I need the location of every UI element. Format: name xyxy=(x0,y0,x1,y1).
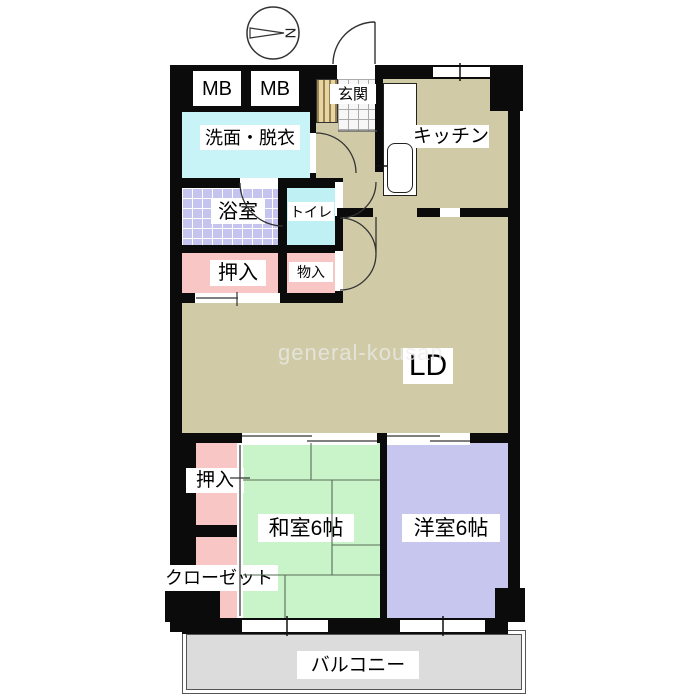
japanese-room-window xyxy=(242,618,328,634)
wall-kitchen-ld-c xyxy=(460,208,508,217)
wall-monoire-bottom xyxy=(280,293,343,303)
wall-room-divider xyxy=(380,433,387,618)
kitchen-window xyxy=(433,65,490,79)
balcony-label: バルコニー xyxy=(297,651,419,679)
western-room-window xyxy=(400,618,485,634)
kitchen-pass-opening xyxy=(440,208,460,217)
monoire-label: 物入 xyxy=(289,262,333,282)
compass-north-letter: N xyxy=(282,28,299,39)
japanese-room-label: 和室6帖 xyxy=(258,514,354,542)
japanese-room-sliding-door xyxy=(242,433,377,445)
kitchen-sink xyxy=(387,143,413,193)
wall-bottom-a xyxy=(182,618,242,634)
wall-kitchen-ld-a xyxy=(337,208,373,217)
entrance-door-arc xyxy=(333,22,375,64)
wall-top-b xyxy=(377,65,433,79)
wall-washroom-bottom xyxy=(170,178,240,188)
floor-plan: MB MB 玄関 キッチン 洗面・脱衣 浴室 トイレ 押入 物入 LD 押入 ク… xyxy=(0,0,700,700)
pillar-top-right xyxy=(490,65,523,111)
oshiire-sliding-opening xyxy=(195,293,280,303)
wall-bath-toilet-divider xyxy=(278,178,287,295)
bathroom-label: 浴室 xyxy=(211,199,265,224)
genkan-label: 玄関 xyxy=(330,84,376,104)
wall-ld-bedroom-c xyxy=(470,433,508,443)
wall-ld-bedroom-a xyxy=(182,433,242,443)
toilet-label: トイレ xyxy=(288,202,334,221)
oshiire-lower-label: 押入 xyxy=(186,468,244,493)
monoire-door-opening xyxy=(335,251,343,291)
wall-oshiire-closet-divider xyxy=(182,525,237,537)
pillar-bottom-right xyxy=(495,588,525,622)
wall-left xyxy=(170,79,182,632)
meter-box-2: MB xyxy=(251,71,299,106)
watermark-text: general-kousan xyxy=(278,340,444,366)
compass-icon: N xyxy=(247,7,299,59)
wall-bath-oshiire-divider xyxy=(170,245,343,253)
wall-bottom-b xyxy=(328,618,400,634)
wall-toilet-top xyxy=(283,178,343,188)
wall-bottom-c xyxy=(485,618,508,634)
closet-label: クローゼット xyxy=(160,565,278,591)
washroom-door-opening xyxy=(310,133,316,173)
bathroom-door-opening xyxy=(240,178,283,188)
wall-oshiire-bottom-a xyxy=(170,293,195,303)
western-room-label: 洋室6帖 xyxy=(402,514,500,542)
washroom-label: 洗面・脱衣 xyxy=(200,125,300,150)
oshiire-upper-label: 押入 xyxy=(210,260,266,286)
wall-right xyxy=(508,111,520,622)
western-room-sliding-door xyxy=(387,433,470,445)
wall-genkan-kitchen xyxy=(375,65,383,172)
kitchen-label: キッチン xyxy=(413,125,489,148)
wall-kitchen-ld-b xyxy=(417,208,440,217)
wall-top-a xyxy=(310,65,337,79)
meter-box-1: MB xyxy=(193,71,241,106)
